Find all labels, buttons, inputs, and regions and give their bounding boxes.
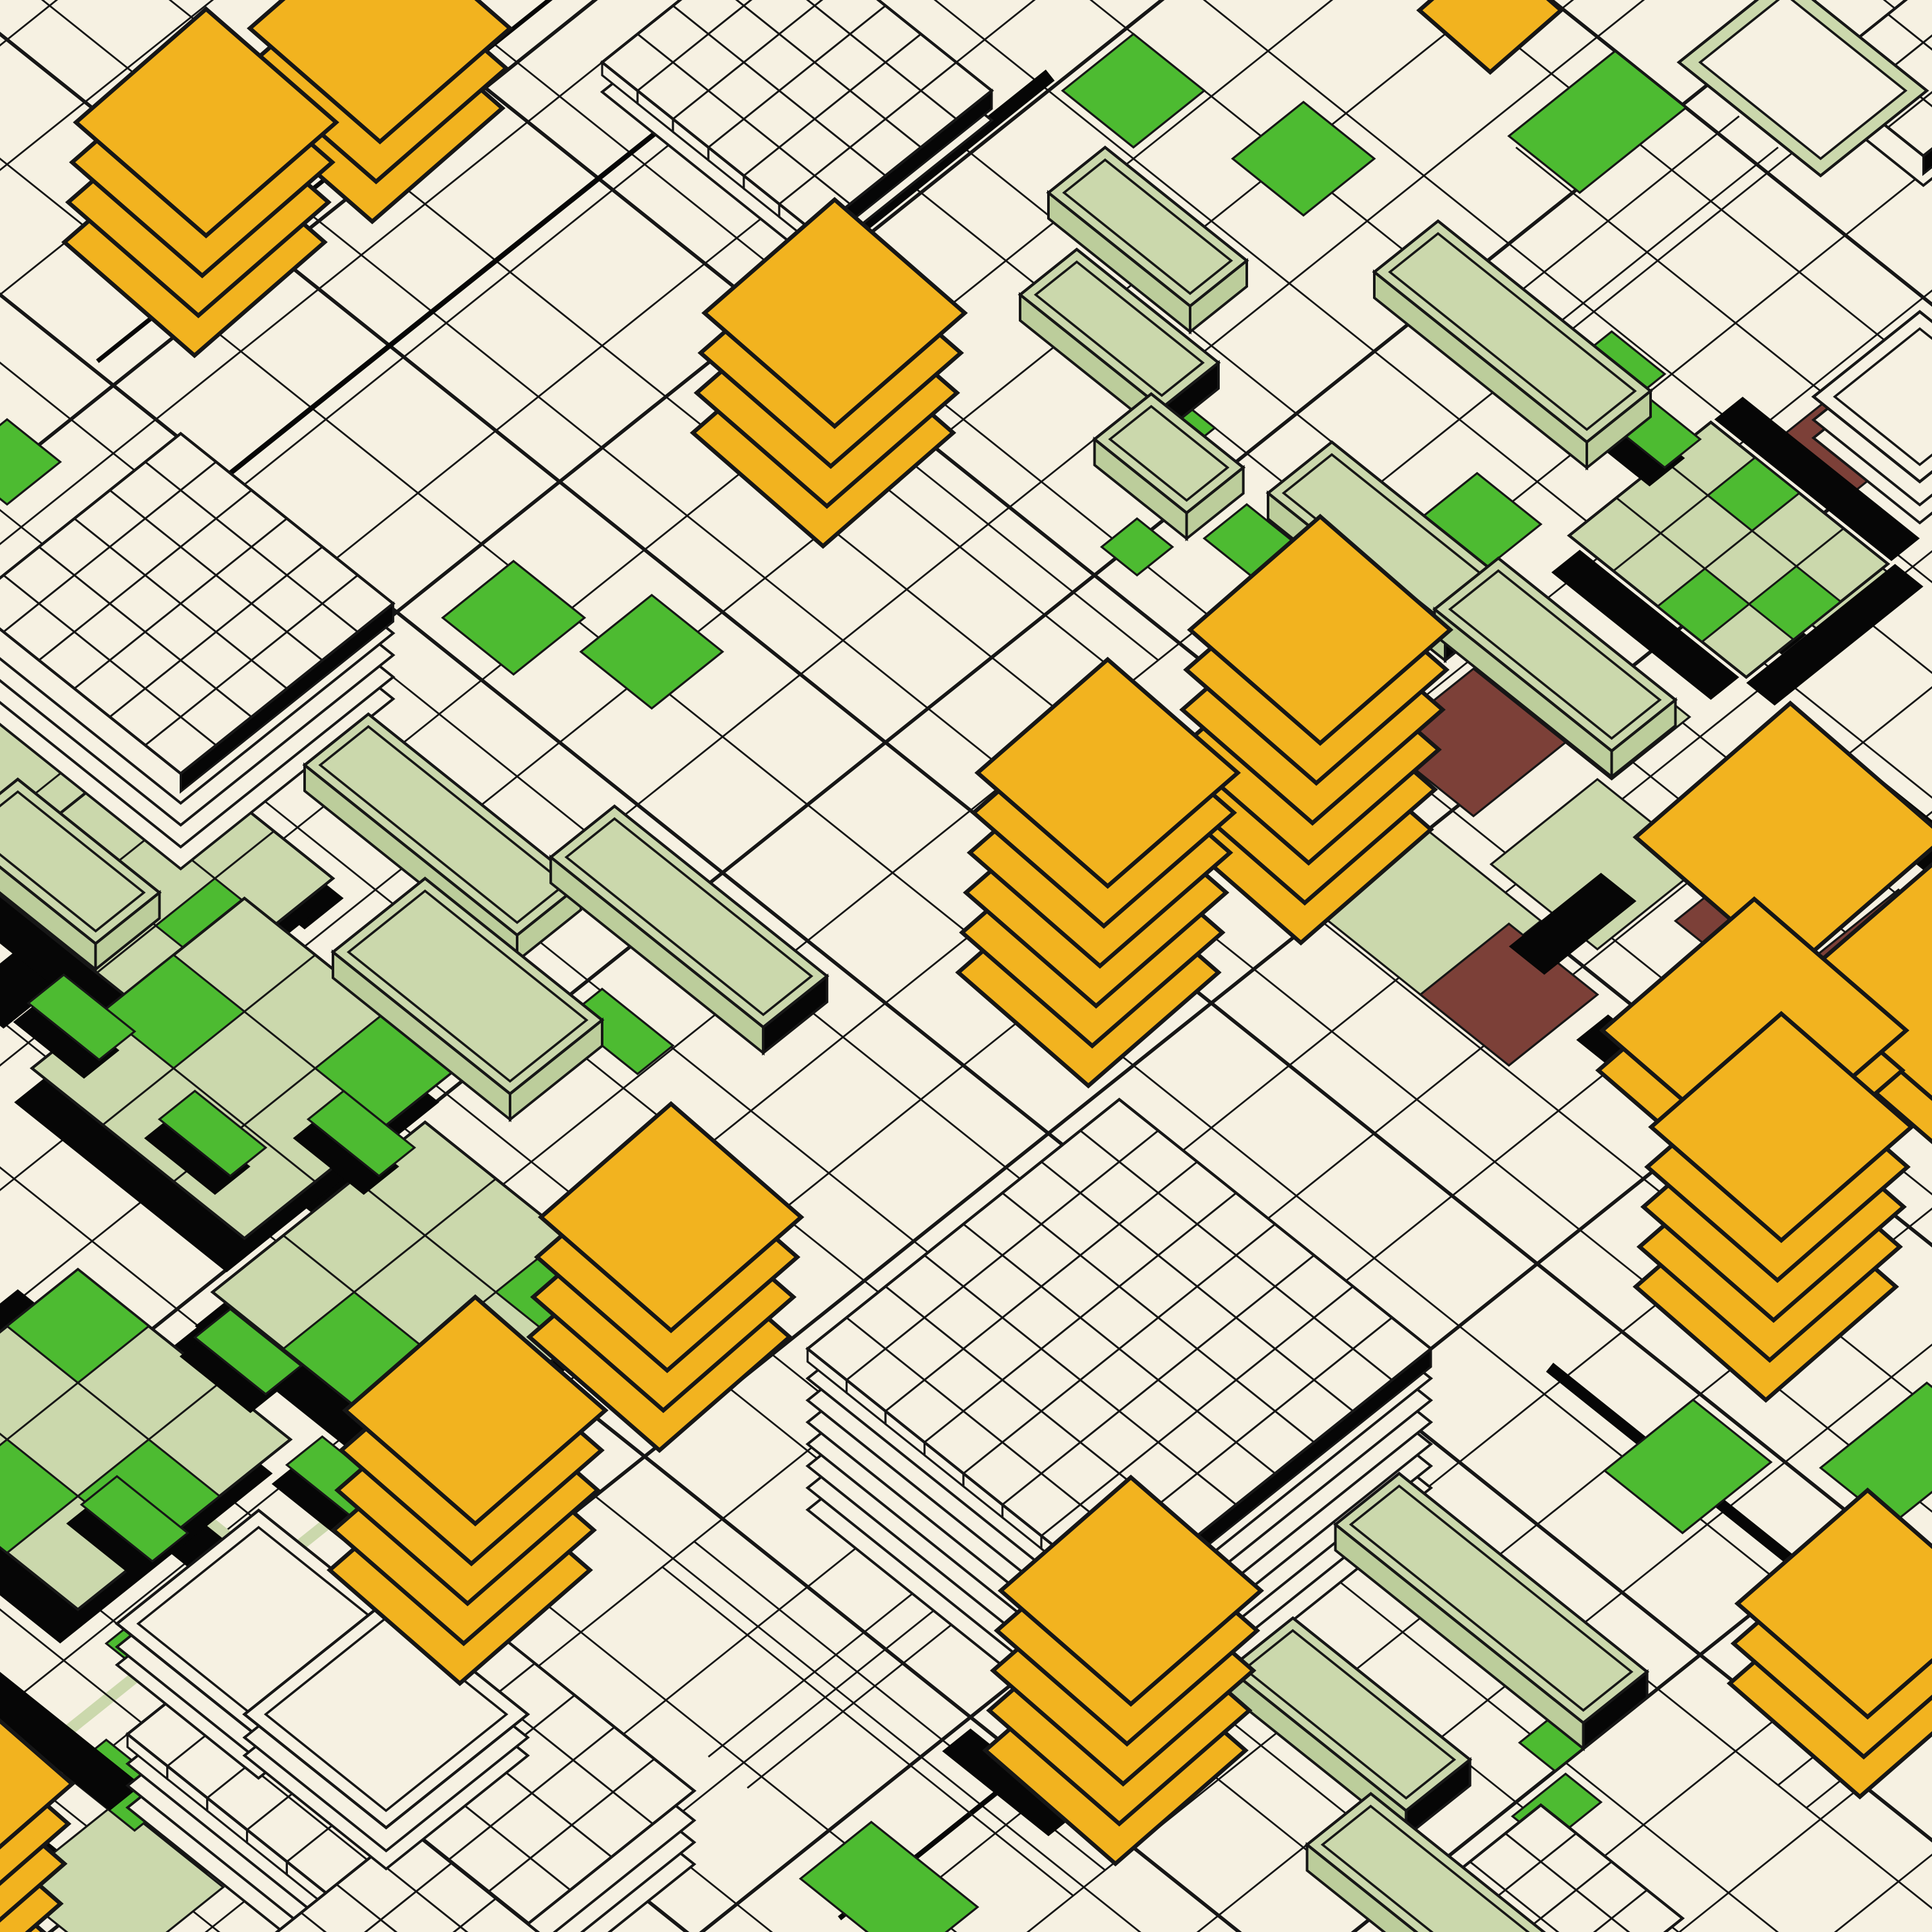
- generative-isometric-artwork: [0, 0, 1932, 1932]
- artwork-stage: [0, 0, 1932, 1932]
